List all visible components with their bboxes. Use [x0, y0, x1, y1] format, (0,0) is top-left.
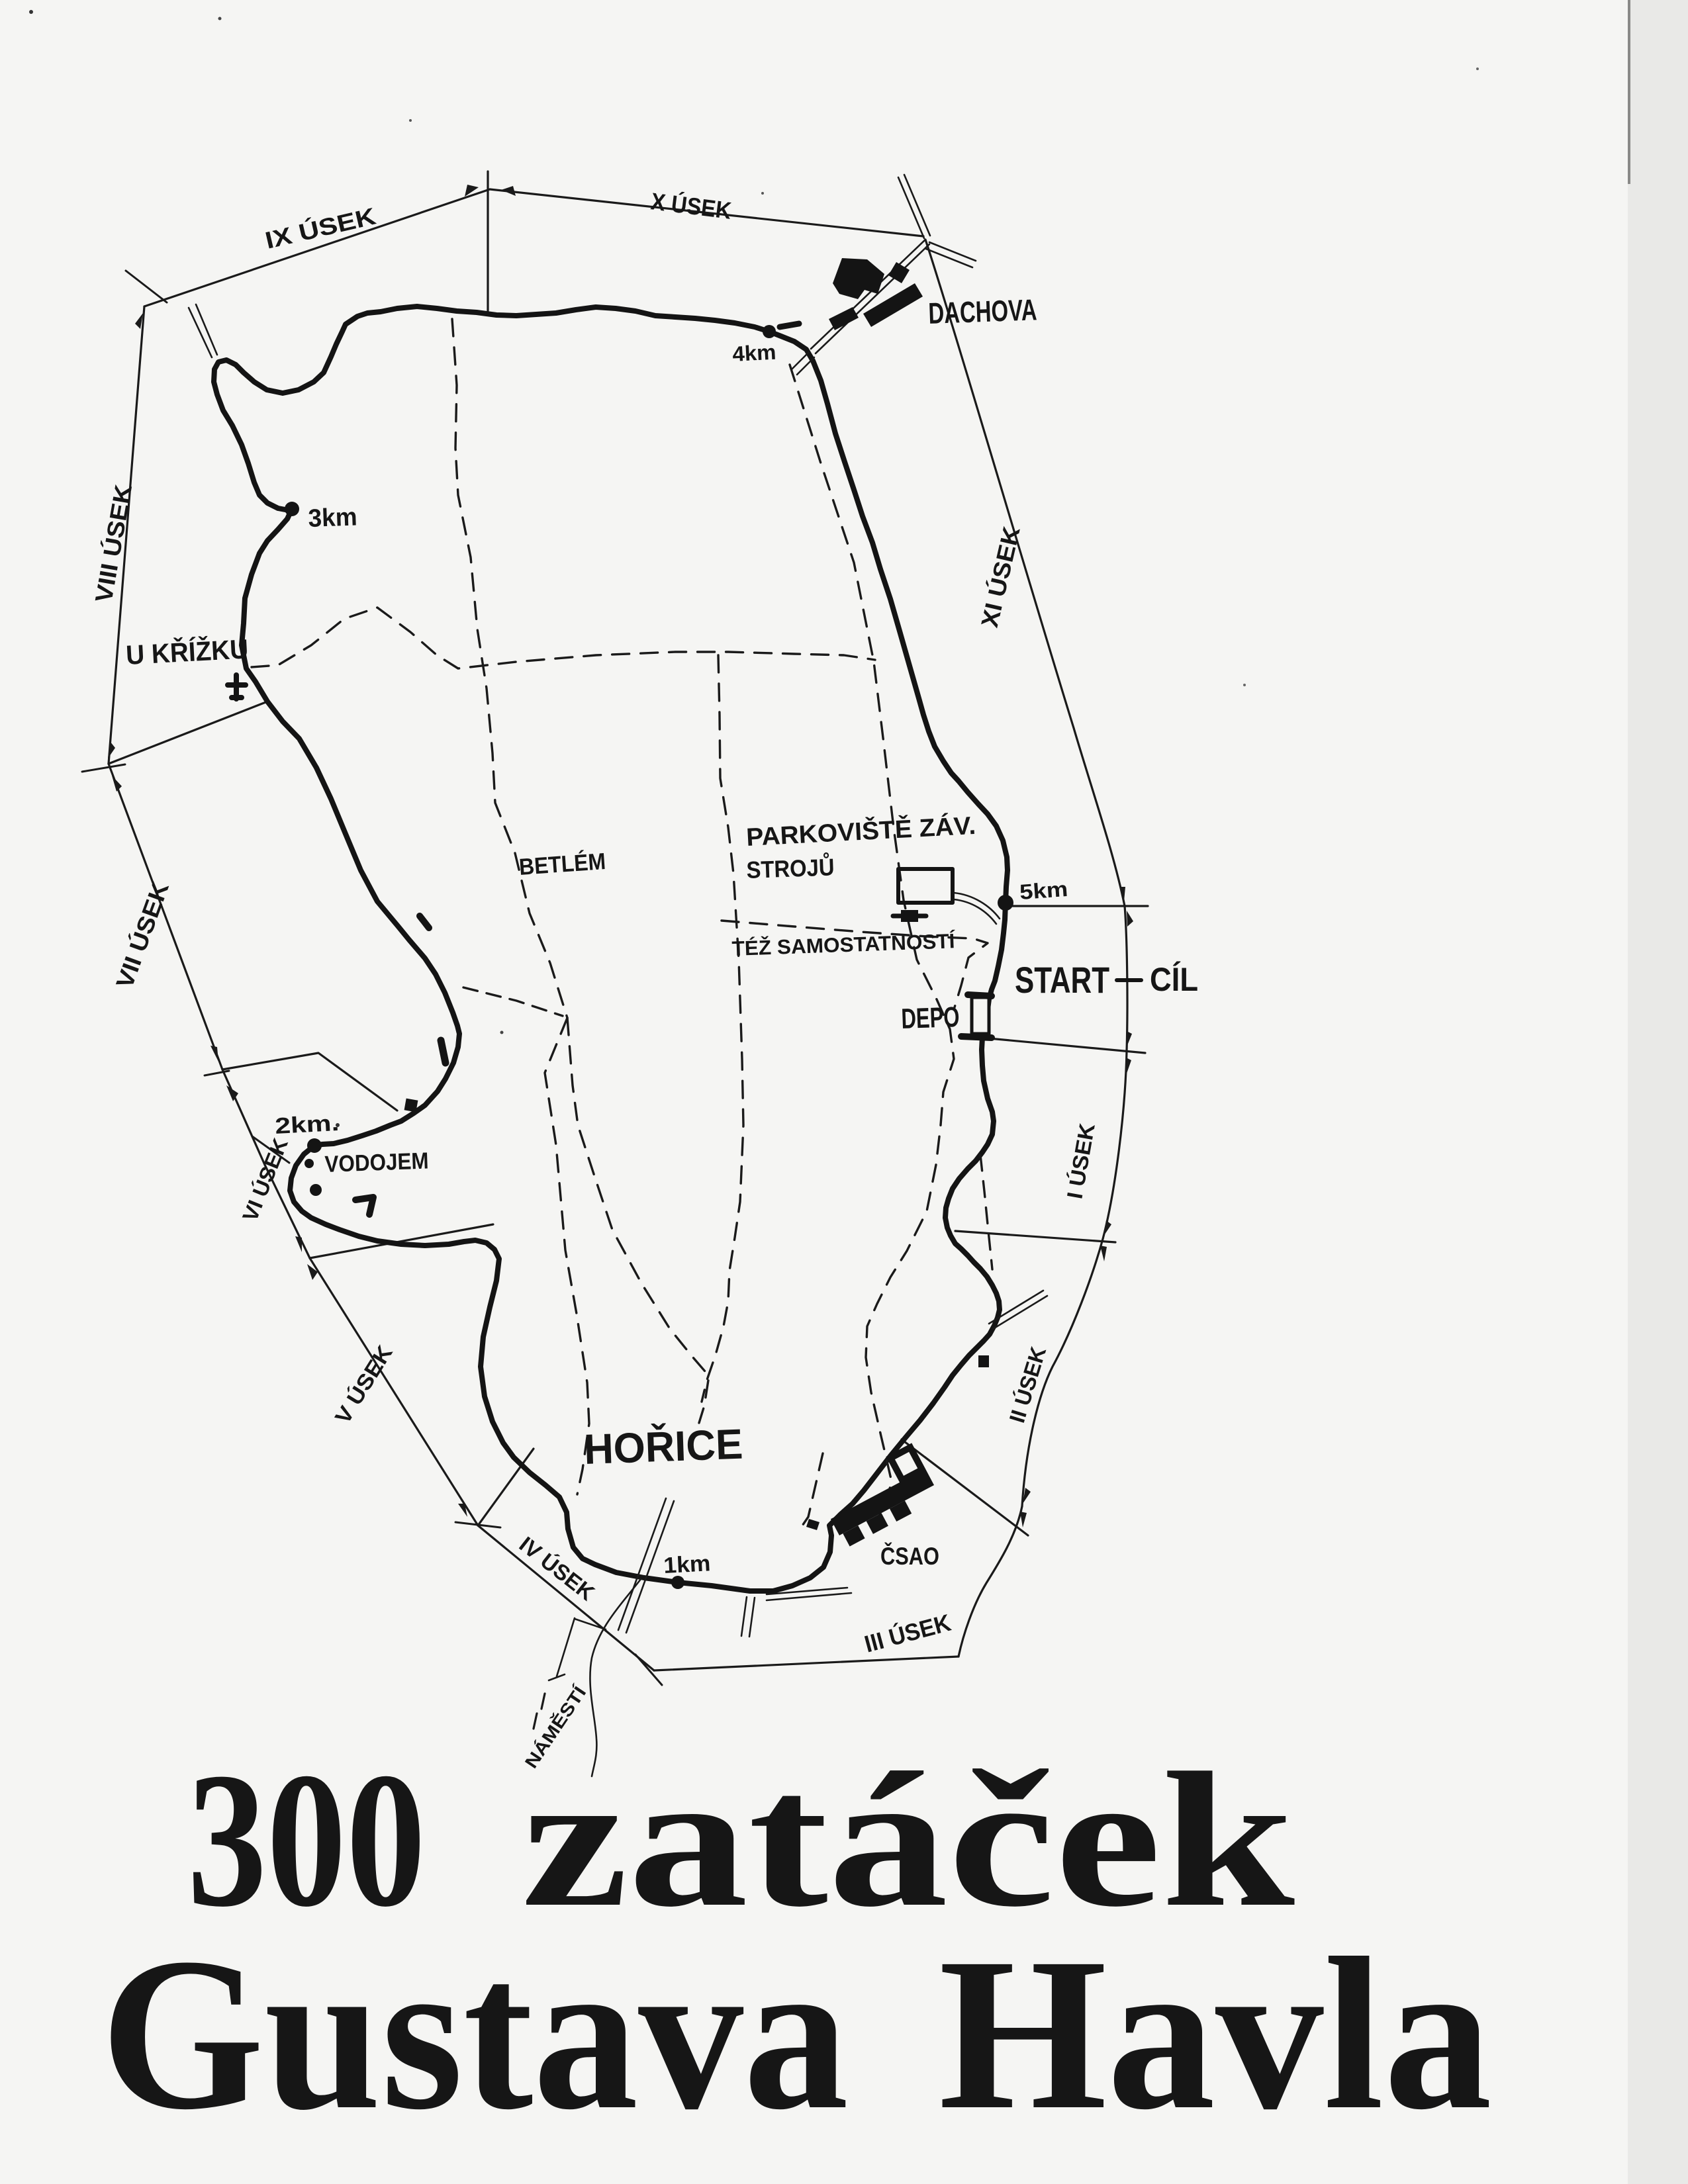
svg-text:5km: 5km	[1019, 877, 1068, 904]
svg-text:VODOJEM: VODOJEM	[324, 1148, 429, 1177]
svg-text:U KŘÍŽKU: U KŘÍŽKU	[125, 633, 249, 670]
svg-text:Gustava: Gustava	[101, 1913, 849, 2155]
svg-text:Havla: Havla	[939, 1913, 1492, 2155]
svg-text:CÍL: CÍL	[1150, 961, 1198, 998]
svg-text:ČSAO: ČSAO	[880, 1542, 939, 1570]
svg-text:DEPO: DEPO	[901, 1001, 961, 1035]
svg-text:1km: 1km	[663, 1551, 711, 1578]
svg-text:START: START	[1015, 959, 1109, 1001]
svg-text:DACHOVA: DACHOVA	[928, 293, 1038, 330]
svg-text:HOŘICE: HOŘICE	[583, 1420, 743, 1473]
svg-text:STROJŮ: STROJŮ	[746, 850, 835, 884]
svg-text:4km: 4km	[731, 340, 776, 366]
svg-text:3km: 3km	[308, 503, 357, 533]
svg-text:2km.: 2km.	[274, 1111, 340, 1139]
